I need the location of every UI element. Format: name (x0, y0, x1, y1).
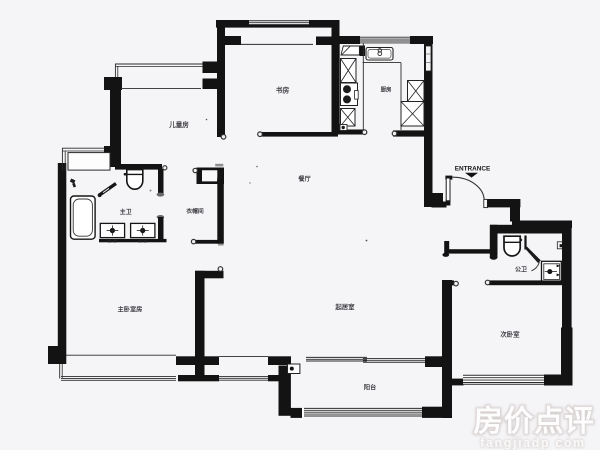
svg-text:主卫: 主卫 (120, 208, 132, 216)
svg-text:起居室: 起居室 (335, 302, 355, 311)
svg-text:餐厅: 餐厅 (298, 175, 310, 183)
svg-text:房价点评: 房价点评 (473, 405, 594, 438)
svg-text:儿童房: 儿童房 (169, 120, 189, 129)
svg-text:书房: 书房 (276, 86, 290, 95)
svg-text:fangjiadp com: fangjiadp com (480, 436, 586, 450)
svg-text:ENTRANCE: ENTRANCE (455, 166, 491, 173)
svg-text:厨房: 厨房 (381, 86, 392, 94)
svg-text:主卧室房: 主卧室房 (118, 306, 143, 314)
svg-text:阳台: 阳台 (364, 383, 376, 391)
svg-text:次卧室: 次卧室 (500, 330, 520, 339)
svg-text:公卫: 公卫 (515, 266, 527, 273)
svg-text:衣帽间: 衣帽间 (186, 207, 204, 215)
